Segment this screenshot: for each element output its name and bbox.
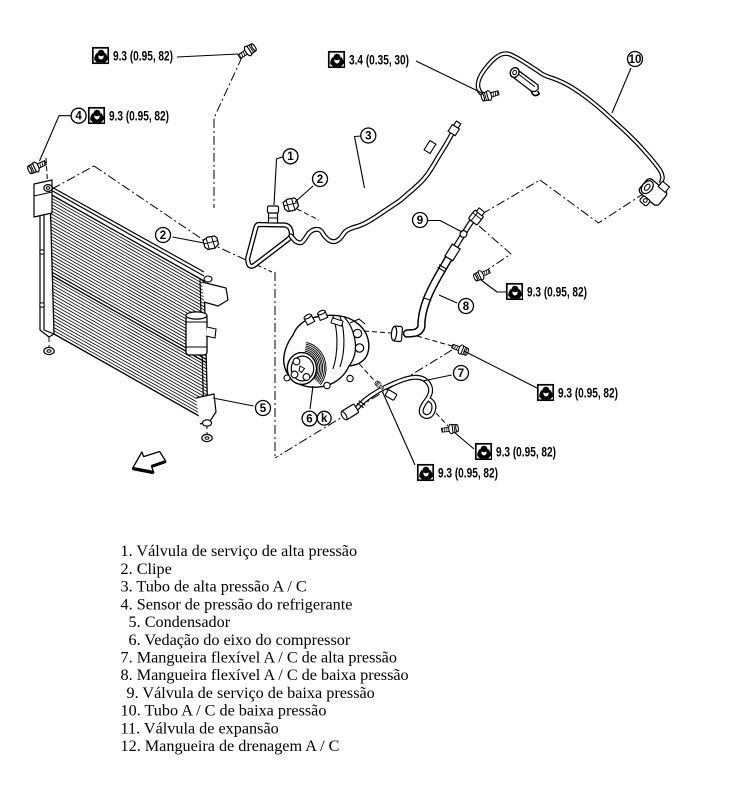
svg-text:1. Válvula de serviço de alta: 1. Válvula de serviço de alta pressão [121, 542, 358, 560]
svg-text:6: 6 [306, 413, 312, 425]
svg-text:9. Válvula de serviço de baixa: 9. Válvula de serviço de baixa pressão [127, 684, 375, 702]
svg-text:9.3 (0.95, 82): 9.3 (0.95, 82) [527, 284, 587, 299]
svg-text:9.3 (0.95, 82): 9.3 (0.95, 82) [438, 465, 498, 480]
svg-text:11. Válvula de expansão: 11. Válvula de expansão [121, 719, 279, 737]
svg-text:1: 1 [287, 151, 294, 163]
svg-text:9.3 (0.95, 82): 9.3 (0.95, 82) [109, 108, 169, 123]
svg-text:k: k [321, 413, 328, 425]
svg-text:10: 10 [629, 54, 642, 66]
svg-text:3.4 (0.35, 30): 3.4 (0.35, 30) [349, 52, 409, 67]
svg-text:7. Mangueira flexível A / C de: 7. Mangueira flexível A / C de alta pres… [121, 649, 397, 667]
svg-text:2: 2 [317, 174, 323, 186]
svg-text:2: 2 [160, 230, 166, 242]
svg-text:9.3 (0.95, 82): 9.3 (0.95, 82) [496, 444, 556, 459]
svg-text:6. Vedação do eixo do compress: 6. Vedação do eixo do compressor [129, 631, 351, 649]
svg-text:9.3 (0.95, 82): 9.3 (0.95, 82) [113, 48, 173, 63]
svg-text:8: 8 [463, 301, 470, 313]
svg-text:9.3 (0.95, 82): 9.3 (0.95, 82) [558, 385, 618, 400]
svg-text:5. Condensador: 5. Condensador [129, 613, 231, 631]
svg-text:12. Mangueira de drenagem A /: 12. Mangueira de drenagem A / C [121, 737, 340, 755]
svg-text:3: 3 [365, 130, 371, 142]
svg-text:8. Mangueira flexível A / C de: 8. Mangueira flexível A / C de baixa pre… [121, 666, 409, 684]
svg-text:10. Tubo A / C de baixa pressã: 10. Tubo A / C de baixa pressão [121, 702, 327, 720]
svg-text:7: 7 [458, 368, 464, 380]
svg-text:9: 9 [417, 215, 423, 227]
svg-text:4. Sensor de pressão do refrig: 4. Sensor de pressão do refrigerante [121, 595, 353, 613]
svg-text:5: 5 [260, 403, 267, 415]
svg-text:3. Tubo de alta pressão A / C: 3. Tubo de alta pressão A / C [121, 578, 307, 596]
svg-text:4: 4 [75, 111, 82, 123]
svg-text:2. Clipe: 2. Clipe [121, 560, 172, 578]
